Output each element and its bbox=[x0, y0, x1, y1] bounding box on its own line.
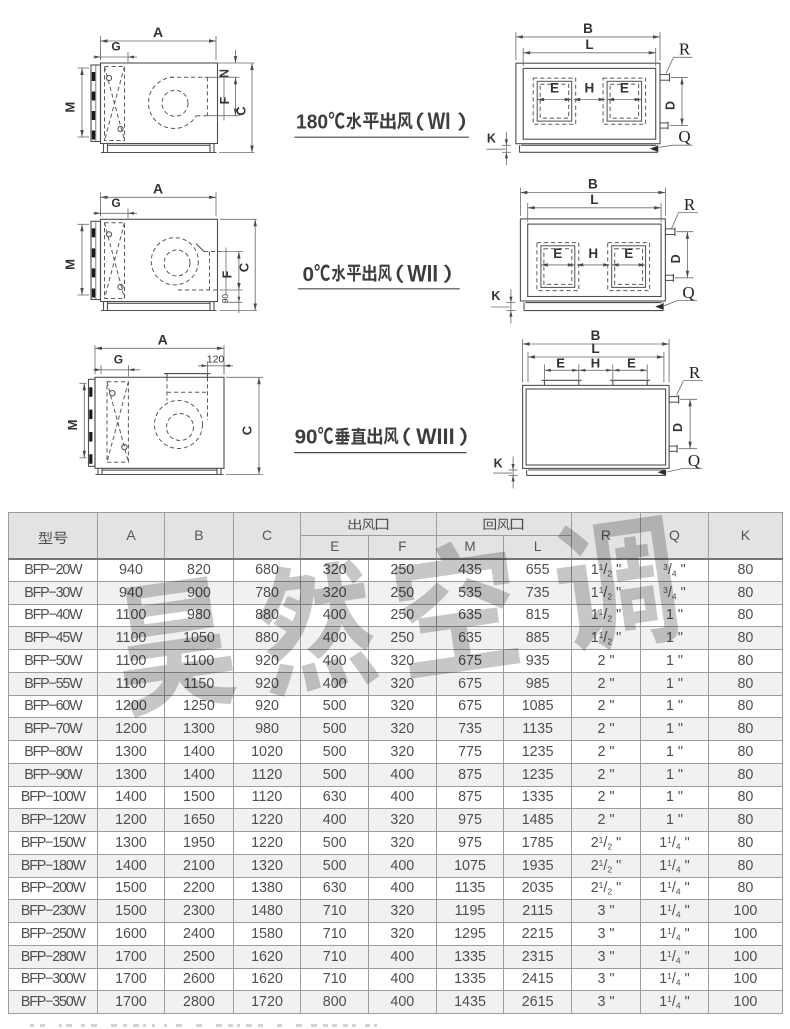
svg-text:WI: WI bbox=[428, 108, 451, 135]
svg-text:180: 180 bbox=[296, 111, 328, 134]
svg-text:L: L bbox=[590, 192, 598, 207]
svg-text:M: M bbox=[65, 420, 80, 431]
svg-text:E: E bbox=[556, 356, 565, 371]
svg-text:WII: WII bbox=[407, 260, 438, 287]
svg-text:R: R bbox=[679, 40, 691, 59]
svg-text:G: G bbox=[111, 196, 120, 210]
svg-text:E: E bbox=[553, 246, 562, 261]
svg-text:B: B bbox=[583, 21, 593, 36]
svg-text:E: E bbox=[550, 81, 559, 96]
svg-text:M: M bbox=[63, 102, 78, 113]
svg-text:N: N bbox=[218, 69, 232, 78]
svg-text:H: H bbox=[588, 246, 598, 261]
svg-text:Q: Q bbox=[682, 283, 694, 302]
svg-text:A: A bbox=[153, 180, 163, 196]
svg-text:L: L bbox=[591, 341, 599, 356]
svg-text:K: K bbox=[494, 456, 503, 470]
svg-text:B: B bbox=[588, 177, 598, 192]
svg-text:H: H bbox=[591, 356, 600, 371]
svg-text:D: D bbox=[664, 101, 678, 110]
svg-text:E: E bbox=[624, 246, 633, 261]
svg-text:F: F bbox=[218, 96, 232, 104]
svg-text:G: G bbox=[111, 40, 120, 54]
svg-text:Q: Q bbox=[688, 451, 700, 470]
svg-text:F: F bbox=[221, 270, 235, 278]
svg-text:C: C bbox=[240, 425, 255, 435]
svg-text:WIII: WIII bbox=[416, 424, 455, 449]
svg-text:A: A bbox=[158, 331, 168, 347]
svg-text:Q: Q bbox=[678, 127, 690, 146]
svg-text:A: A bbox=[153, 24, 163, 40]
svg-text:C: C bbox=[237, 262, 252, 272]
svg-text:120: 120 bbox=[207, 354, 225, 366]
svg-text:90: 90 bbox=[295, 426, 318, 449]
svg-text:0: 0 bbox=[303, 263, 315, 286]
svg-text:90: 90 bbox=[221, 294, 230, 303]
svg-text:D: D bbox=[671, 423, 685, 432]
svg-text:H: H bbox=[585, 81, 595, 96]
svg-text:K: K bbox=[487, 132, 496, 146]
svg-text:R: R bbox=[684, 195, 696, 214]
svg-text:M: M bbox=[63, 259, 78, 270]
svg-text:L: L bbox=[585, 37, 593, 52]
svg-text:R: R bbox=[689, 363, 701, 382]
svg-text:D: D bbox=[669, 254, 683, 263]
svg-text:C: C bbox=[234, 106, 249, 116]
svg-text:G: G bbox=[114, 352, 123, 366]
svg-text:K: K bbox=[491, 289, 500, 303]
svg-text:E: E bbox=[620, 81, 629, 96]
svg-text:E: E bbox=[627, 356, 636, 371]
